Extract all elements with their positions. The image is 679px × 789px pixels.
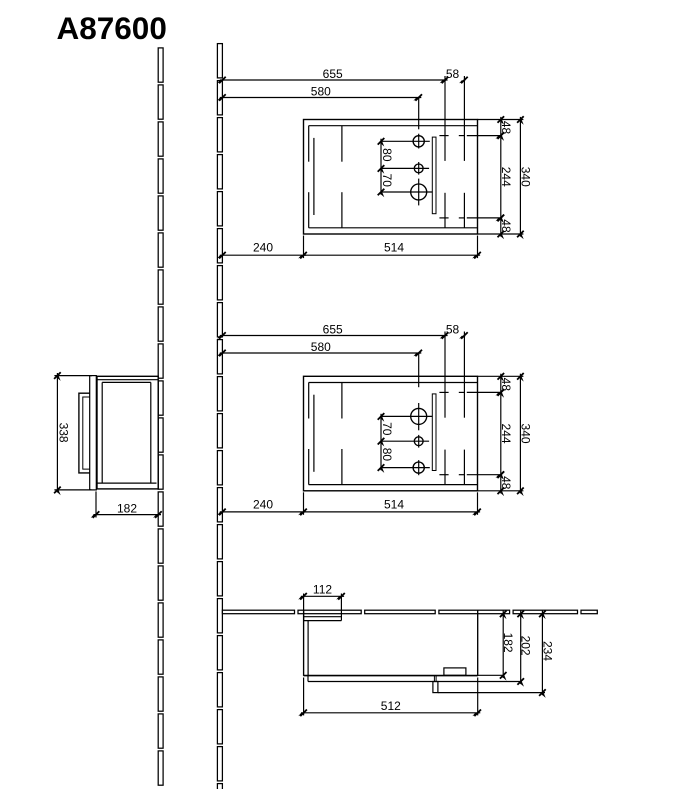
svg-text:70: 70 xyxy=(380,422,394,436)
svg-text:240: 240 xyxy=(253,241,273,255)
svg-text:655: 655 xyxy=(323,323,343,337)
svg-text:58: 58 xyxy=(446,67,460,81)
svg-text:48: 48 xyxy=(499,378,513,392)
svg-text:580: 580 xyxy=(311,85,331,99)
svg-text:182: 182 xyxy=(501,633,515,653)
svg-text:48: 48 xyxy=(499,121,513,135)
svg-text:338: 338 xyxy=(56,423,70,443)
svg-text:240: 240 xyxy=(253,497,273,511)
svg-text:182: 182 xyxy=(117,502,137,516)
svg-text:80: 80 xyxy=(380,448,394,462)
svg-text:512: 512 xyxy=(381,699,401,713)
svg-text:340: 340 xyxy=(518,424,532,444)
svg-text:340: 340 xyxy=(518,167,532,187)
svg-text:244: 244 xyxy=(499,424,513,444)
svg-text:112: 112 xyxy=(313,582,332,596)
svg-text:514: 514 xyxy=(384,241,404,255)
svg-text:70: 70 xyxy=(380,174,394,188)
svg-text:48: 48 xyxy=(499,219,513,233)
svg-text:244: 244 xyxy=(499,167,513,187)
svg-text:234: 234 xyxy=(540,641,554,661)
svg-text:202: 202 xyxy=(519,636,533,656)
svg-text:655: 655 xyxy=(323,67,343,81)
svg-text:A87600: A87600 xyxy=(57,10,167,46)
svg-text:580: 580 xyxy=(311,340,331,354)
svg-text:514: 514 xyxy=(384,497,404,511)
svg-text:80: 80 xyxy=(380,148,394,162)
svg-text:48: 48 xyxy=(499,476,513,490)
svg-text:58: 58 xyxy=(446,323,460,337)
